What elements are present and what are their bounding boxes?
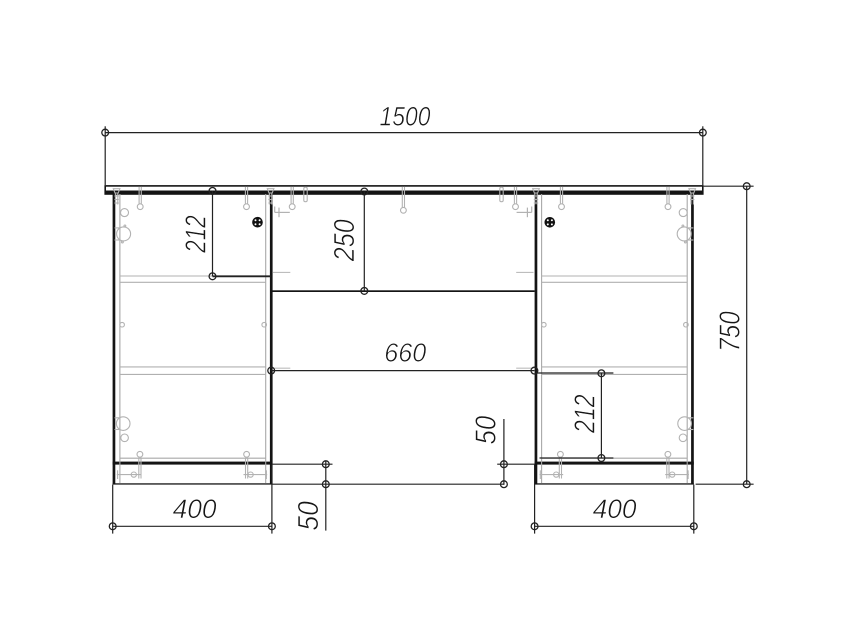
svg-text:212: 212 — [180, 215, 212, 253]
svg-text:400: 400 — [593, 493, 637, 524]
svg-text:50: 50 — [471, 416, 503, 445]
svg-text:50: 50 — [293, 501, 325, 531]
svg-text:212: 212 — [570, 394, 602, 434]
svg-text:750: 750 — [714, 311, 746, 352]
svg-text:660: 660 — [384, 340, 426, 368]
svg-text:400: 400 — [173, 493, 217, 524]
svg-text:250: 250 — [329, 219, 361, 262]
svg-text:1500: 1500 — [380, 102, 431, 132]
